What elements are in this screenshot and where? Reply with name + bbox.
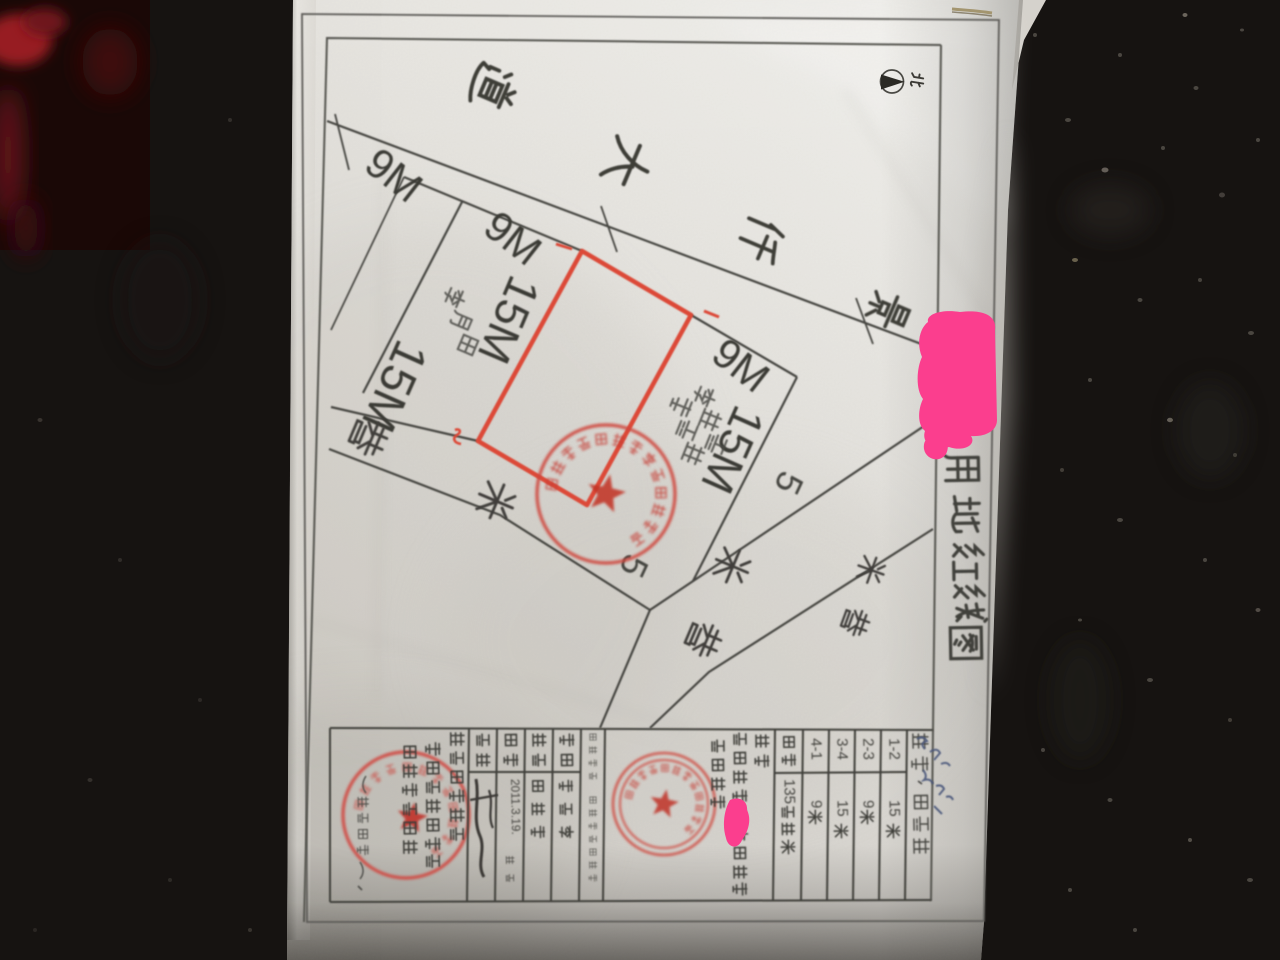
svg-text:4-1: 4-1 xyxy=(807,738,824,760)
svg-text:9: 9 xyxy=(808,800,825,809)
svg-text:15: 15 xyxy=(834,800,851,817)
svg-text:15: 15 xyxy=(886,800,903,817)
svg-text:2-3: 2-3 xyxy=(859,738,876,760)
svg-text:3-4: 3-4 xyxy=(833,738,850,760)
svg-text:135: 135 xyxy=(781,779,798,804)
svg-text:1-2: 1-2 xyxy=(885,738,902,760)
svg-text:9: 9 xyxy=(860,800,877,809)
svg-text:2011.3.19.: 2011.3.19. xyxy=(508,779,523,835)
